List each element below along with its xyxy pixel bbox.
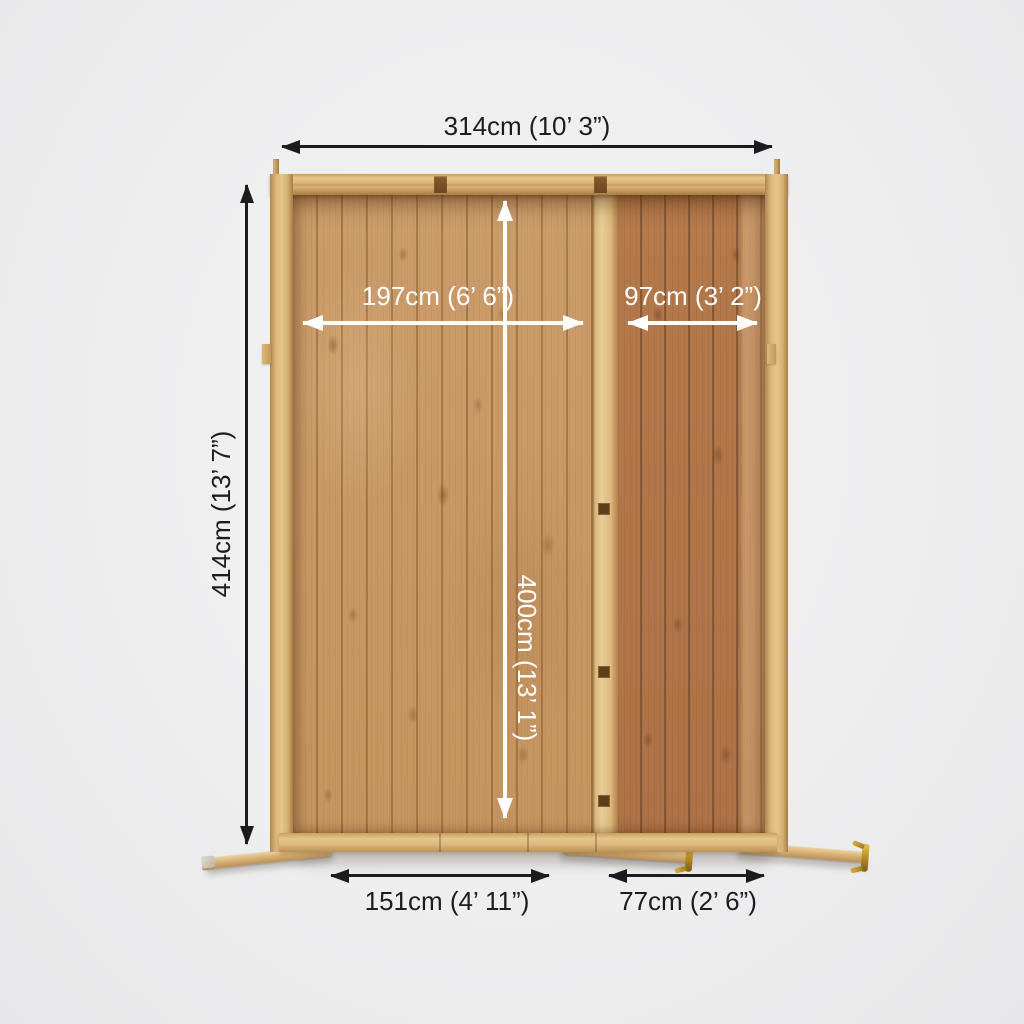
- log-end-tab-left: [262, 344, 271, 364]
- arrowhead-left: [627, 315, 648, 331]
- dim-overall-width-label: 314cm (10’ 3”): [444, 113, 611, 139]
- wall-seam: [595, 833, 597, 852]
- joint-notch: [598, 666, 610, 678]
- product-dimension-diagram: 314cm (10’ 3”) 414cm (13’ 7”) 197cm (6’ …: [0, 0, 1024, 1024]
- arrowhead-left: [330, 869, 349, 883]
- dim-interior-depth-label: 400cm (13’ 1”): [514, 575, 540, 742]
- arrowhead-right: [746, 869, 765, 883]
- divider-wall: [591, 195, 618, 833]
- wall-connector-block: [594, 176, 607, 193]
- right-wall: [765, 174, 788, 852]
- dim-overall-depth-label: 414cm (13’ 7”): [208, 431, 234, 598]
- dim-door-main-width-label: 151cm (4’ 11”): [365, 888, 530, 914]
- front-wall: [279, 833, 777, 852]
- arrowhead-up: [497, 200, 513, 221]
- dim-overall-depth-arrow: [245, 185, 248, 844]
- joint-notch: [598, 795, 610, 807]
- wall-seam: [527, 833, 529, 852]
- arrowhead-left: [281, 140, 300, 154]
- dim-door-main-width-arrow: [331, 874, 549, 877]
- left-wall: [270, 174, 293, 852]
- arrowhead-right: [737, 315, 758, 331]
- arrowhead-down: [497, 798, 513, 819]
- arrowhead-left: [302, 315, 323, 331]
- arrowhead-up: [240, 184, 254, 203]
- arrowhead-down: [240, 826, 254, 845]
- wall-seam: [439, 833, 441, 852]
- arrowhead-left: [608, 869, 627, 883]
- log-end-tab-right: [767, 344, 776, 364]
- dim-interior-main-width-arrow: [303, 321, 583, 325]
- wall-connector-block: [434, 176, 447, 193]
- dim-interior-depth-arrow: [503, 201, 507, 818]
- arrowhead-right: [563, 315, 584, 331]
- dim-overall-width-arrow: [282, 145, 772, 148]
- brass-hinge-icon: [860, 844, 869, 872]
- dim-door-side-width-label: 77cm (2’ 6”): [619, 888, 757, 914]
- door-end-cap: [201, 855, 215, 870]
- dim-interior-side-width-label: 97cm (3’ 2”): [624, 283, 762, 309]
- dim-interior-main-width-label: 197cm (6’ 6”): [362, 283, 514, 309]
- arrowhead-right: [531, 869, 550, 883]
- dim-door-side-width-arrow: [609, 874, 764, 877]
- back-wall: [270, 174, 788, 195]
- arrowhead-right: [754, 140, 773, 154]
- dim-interior-side-width-arrow: [628, 321, 757, 325]
- joint-notch: [598, 503, 610, 515]
